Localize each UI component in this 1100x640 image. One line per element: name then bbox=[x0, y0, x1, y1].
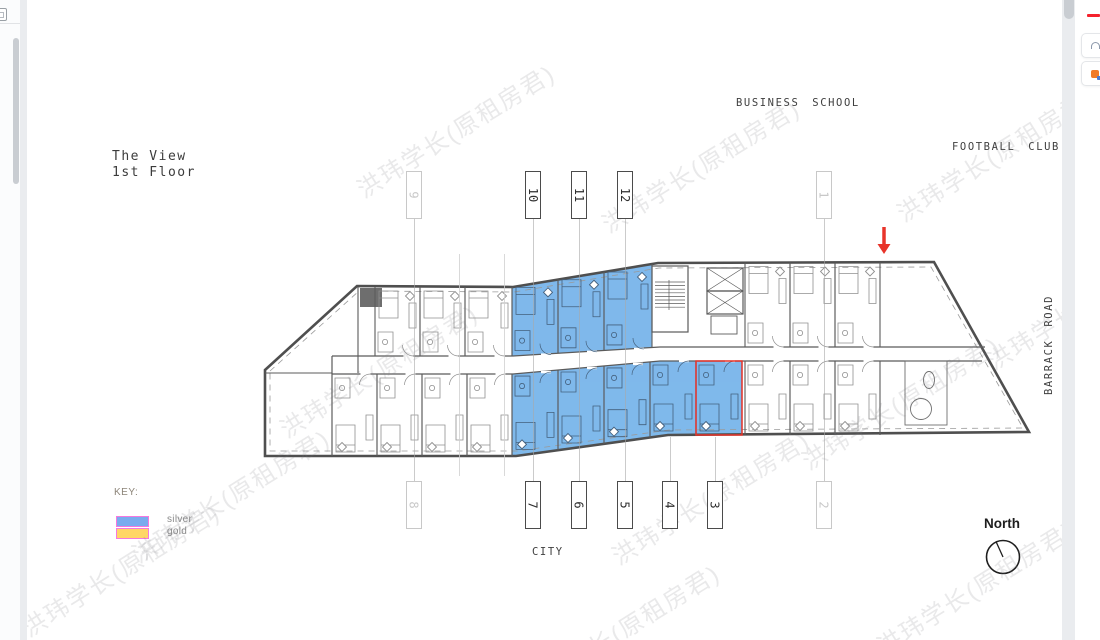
label-city: CITY bbox=[532, 546, 564, 558]
key-swatch-gold bbox=[116, 528, 149, 539]
key-swatch-silver bbox=[116, 516, 149, 527]
left-scrollbar-thumb[interactable] bbox=[13, 38, 19, 184]
plan-title: The View1st Floor bbox=[112, 149, 196, 181]
contact-button[interactable] bbox=[1081, 33, 1100, 58]
room-tag-number: 10 bbox=[526, 188, 540, 202]
tag-leader-line bbox=[504, 254, 505, 476]
key-label-gold: gold bbox=[167, 526, 187, 537]
page-icon[interactable] bbox=[0, 8, 7, 21]
label-football-club: FOOTBALL CLUB bbox=[952, 141, 1060, 153]
viewer-window: The View1st Floor BUSINESS SCHOOL FOOTBA… bbox=[0, 0, 1100, 640]
north-compass-icon bbox=[987, 541, 1020, 574]
tag-leader-line bbox=[625, 219, 626, 481]
headset-icon bbox=[1091, 42, 1100, 49]
north-label: North bbox=[984, 516, 1020, 531]
room-tag-1: 1 bbox=[816, 171, 832, 219]
room-tag-number: 3 bbox=[708, 501, 722, 508]
key-label-silver: silver bbox=[167, 514, 192, 525]
room-tag-number: 5 bbox=[618, 501, 632, 508]
room-tag-6: 6 bbox=[571, 481, 587, 529]
brand-accent-line bbox=[1087, 14, 1100, 17]
accessible-wc bbox=[905, 361, 947, 425]
room-tag-number: 12 bbox=[618, 188, 632, 202]
left-wing-walls bbox=[265, 287, 382, 456]
tag-leader-line bbox=[715, 437, 716, 481]
share-icon bbox=[1091, 70, 1099, 78]
room-tag-4: 4 bbox=[662, 481, 678, 529]
room-tag-11: 11 bbox=[571, 171, 587, 219]
room-tag-10: 10 bbox=[525, 171, 541, 219]
floorplan-layer: The View1st Floor BUSINESS SCHOOL FOOTBA… bbox=[0, 0, 1100, 640]
red-arrow-icon bbox=[878, 227, 891, 254]
room-tag-number: 9 bbox=[407, 191, 421, 198]
room-tag-number: 6 bbox=[572, 501, 586, 508]
tag-leader-line bbox=[533, 219, 534, 481]
stairwell bbox=[652, 266, 688, 332]
left-gutter bbox=[20, 0, 27, 640]
room-tag-number: 1 bbox=[817, 191, 831, 198]
room-tag-number: 4 bbox=[663, 501, 677, 508]
tag-leader-line bbox=[414, 219, 415, 481]
right-scrollbar-thumb[interactable] bbox=[1064, 0, 1074, 19]
room-tag-number: 8 bbox=[407, 501, 421, 508]
room-tag-12: 12 bbox=[617, 171, 633, 219]
room-tag-9: 9 bbox=[406, 171, 422, 219]
tag-leader-line bbox=[670, 437, 671, 481]
right-panel bbox=[1075, 0, 1100, 640]
right-scrollbar-track[interactable] bbox=[1062, 0, 1075, 640]
room-tag-2: 2 bbox=[816, 481, 832, 529]
elevator-core bbox=[707, 268, 743, 334]
tag-leader-line bbox=[824, 219, 825, 481]
room-tag-number: 2 bbox=[817, 501, 831, 508]
key-heading: KEY: bbox=[114, 487, 138, 498]
label-barrack-road: BARRACK ROAD bbox=[1043, 295, 1055, 395]
floorplan-svg bbox=[0, 0, 1100, 640]
tag-leader-line bbox=[579, 219, 580, 481]
room-tag-3: 3 bbox=[707, 481, 723, 529]
share-button[interactable] bbox=[1081, 61, 1100, 86]
room-tag-number: 11 bbox=[572, 188, 586, 202]
room-tag-7: 7 bbox=[525, 481, 541, 529]
room-tag-5: 5 bbox=[617, 481, 633, 529]
tag-leader-line bbox=[459, 254, 460, 476]
label-business-school: BUSINESS SCHOOL bbox=[736, 97, 860, 109]
room-tag-number: 7 bbox=[526, 501, 540, 508]
room-tag-8: 8 bbox=[406, 481, 422, 529]
